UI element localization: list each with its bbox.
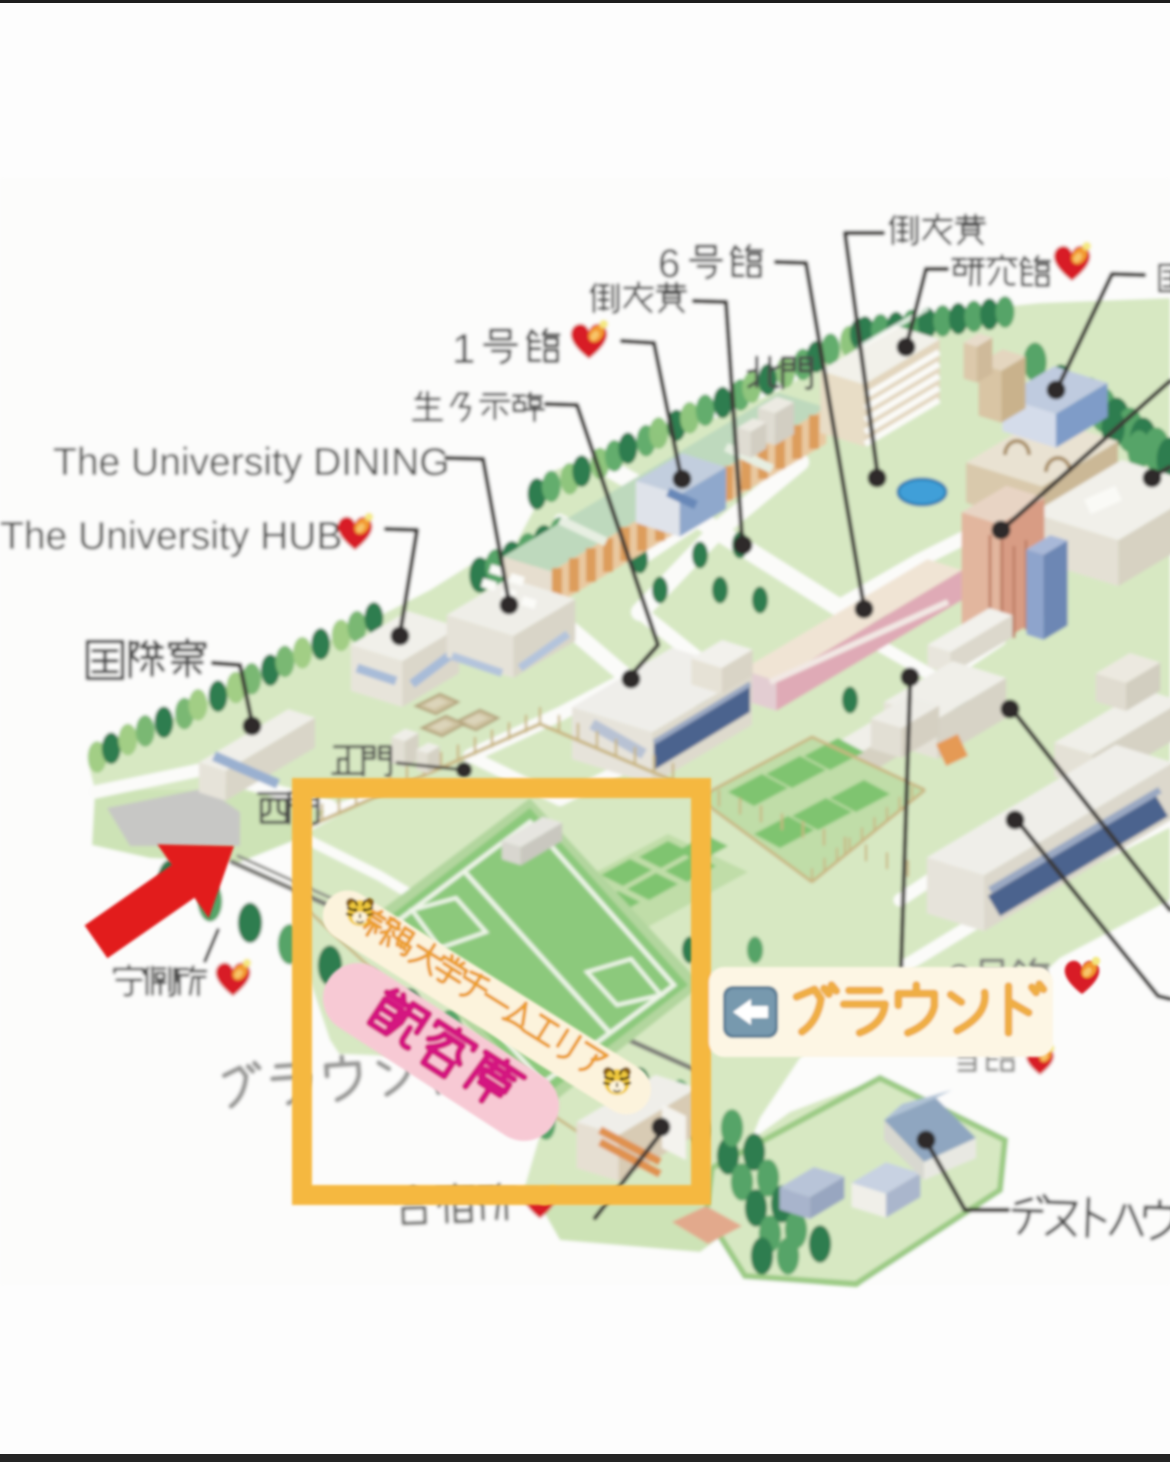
svg-text:6: 6: [658, 242, 680, 286]
svg-text:1: 1: [452, 325, 475, 372]
svg-text:The University DINING: The University DINING: [53, 441, 450, 484]
svg-text:The University HUB: The University HUB: [0, 515, 342, 558]
